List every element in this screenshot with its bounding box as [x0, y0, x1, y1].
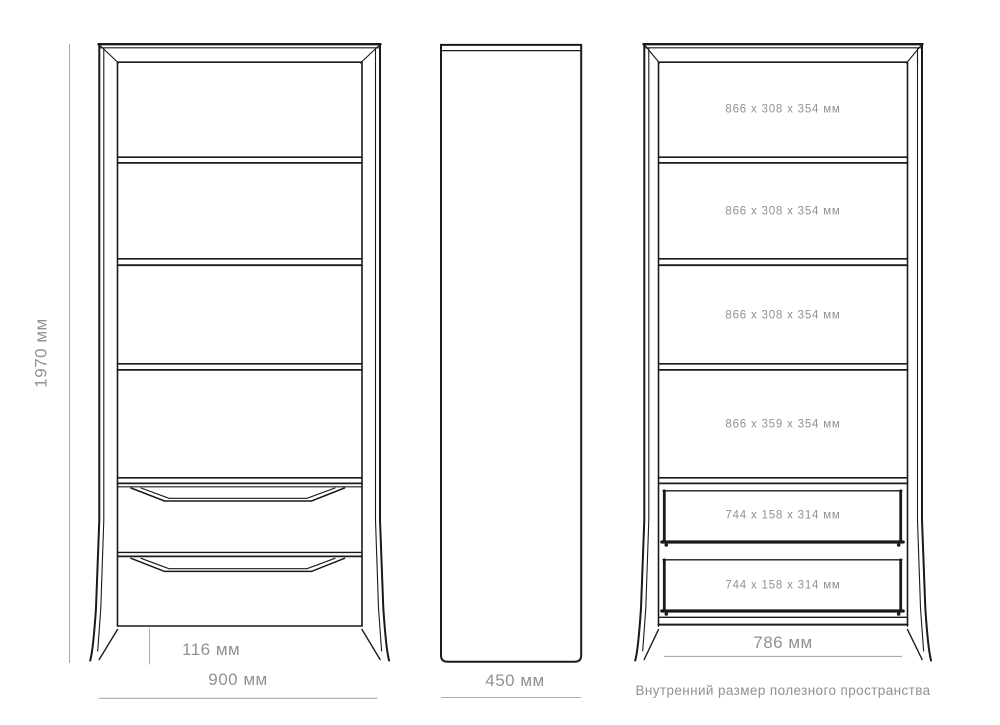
- front-view-drawing: [90, 44, 389, 660]
- shelf-dimension-label-1: 866 x 308 x 354 мм: [725, 104, 840, 116]
- height-dimension-label: 1970 мм: [33, 318, 50, 387]
- side-depth-dimension-label: 450 мм: [485, 672, 544, 689]
- side-view-drawing: [441, 45, 581, 662]
- shelf-dimension-label-2: 866 x 308 x 354 мм: [725, 206, 840, 218]
- shelf-dimension-label-3: 866 x 308 x 354 мм: [725, 310, 840, 322]
- plinth-dimension-label: 116 мм: [182, 641, 240, 658]
- technical-drawing: [0, 0, 1000, 725]
- drawing-canvas: 1970 мм 116 мм 900 мм 450 мм 866 x 308 x…: [0, 0, 1000, 725]
- internal-view-caption: Внутренний размер полезного пространства: [635, 684, 930, 698]
- dimension-lines: [70, 44, 903, 698]
- drawer-dimension-label-1: 744 x 158 x 314 мм: [725, 510, 840, 522]
- drawer-dimension-label-2: 744 x 158 x 314 мм: [725, 580, 840, 592]
- internal-view-drawing: [635, 44, 931, 660]
- front-width-dimension-label: 900 мм: [208, 671, 267, 688]
- shelf-dimension-label-4: 866 x 359 x 354 мм: [725, 419, 840, 431]
- inner-width-dimension-label: 786 мм: [753, 634, 812, 651]
